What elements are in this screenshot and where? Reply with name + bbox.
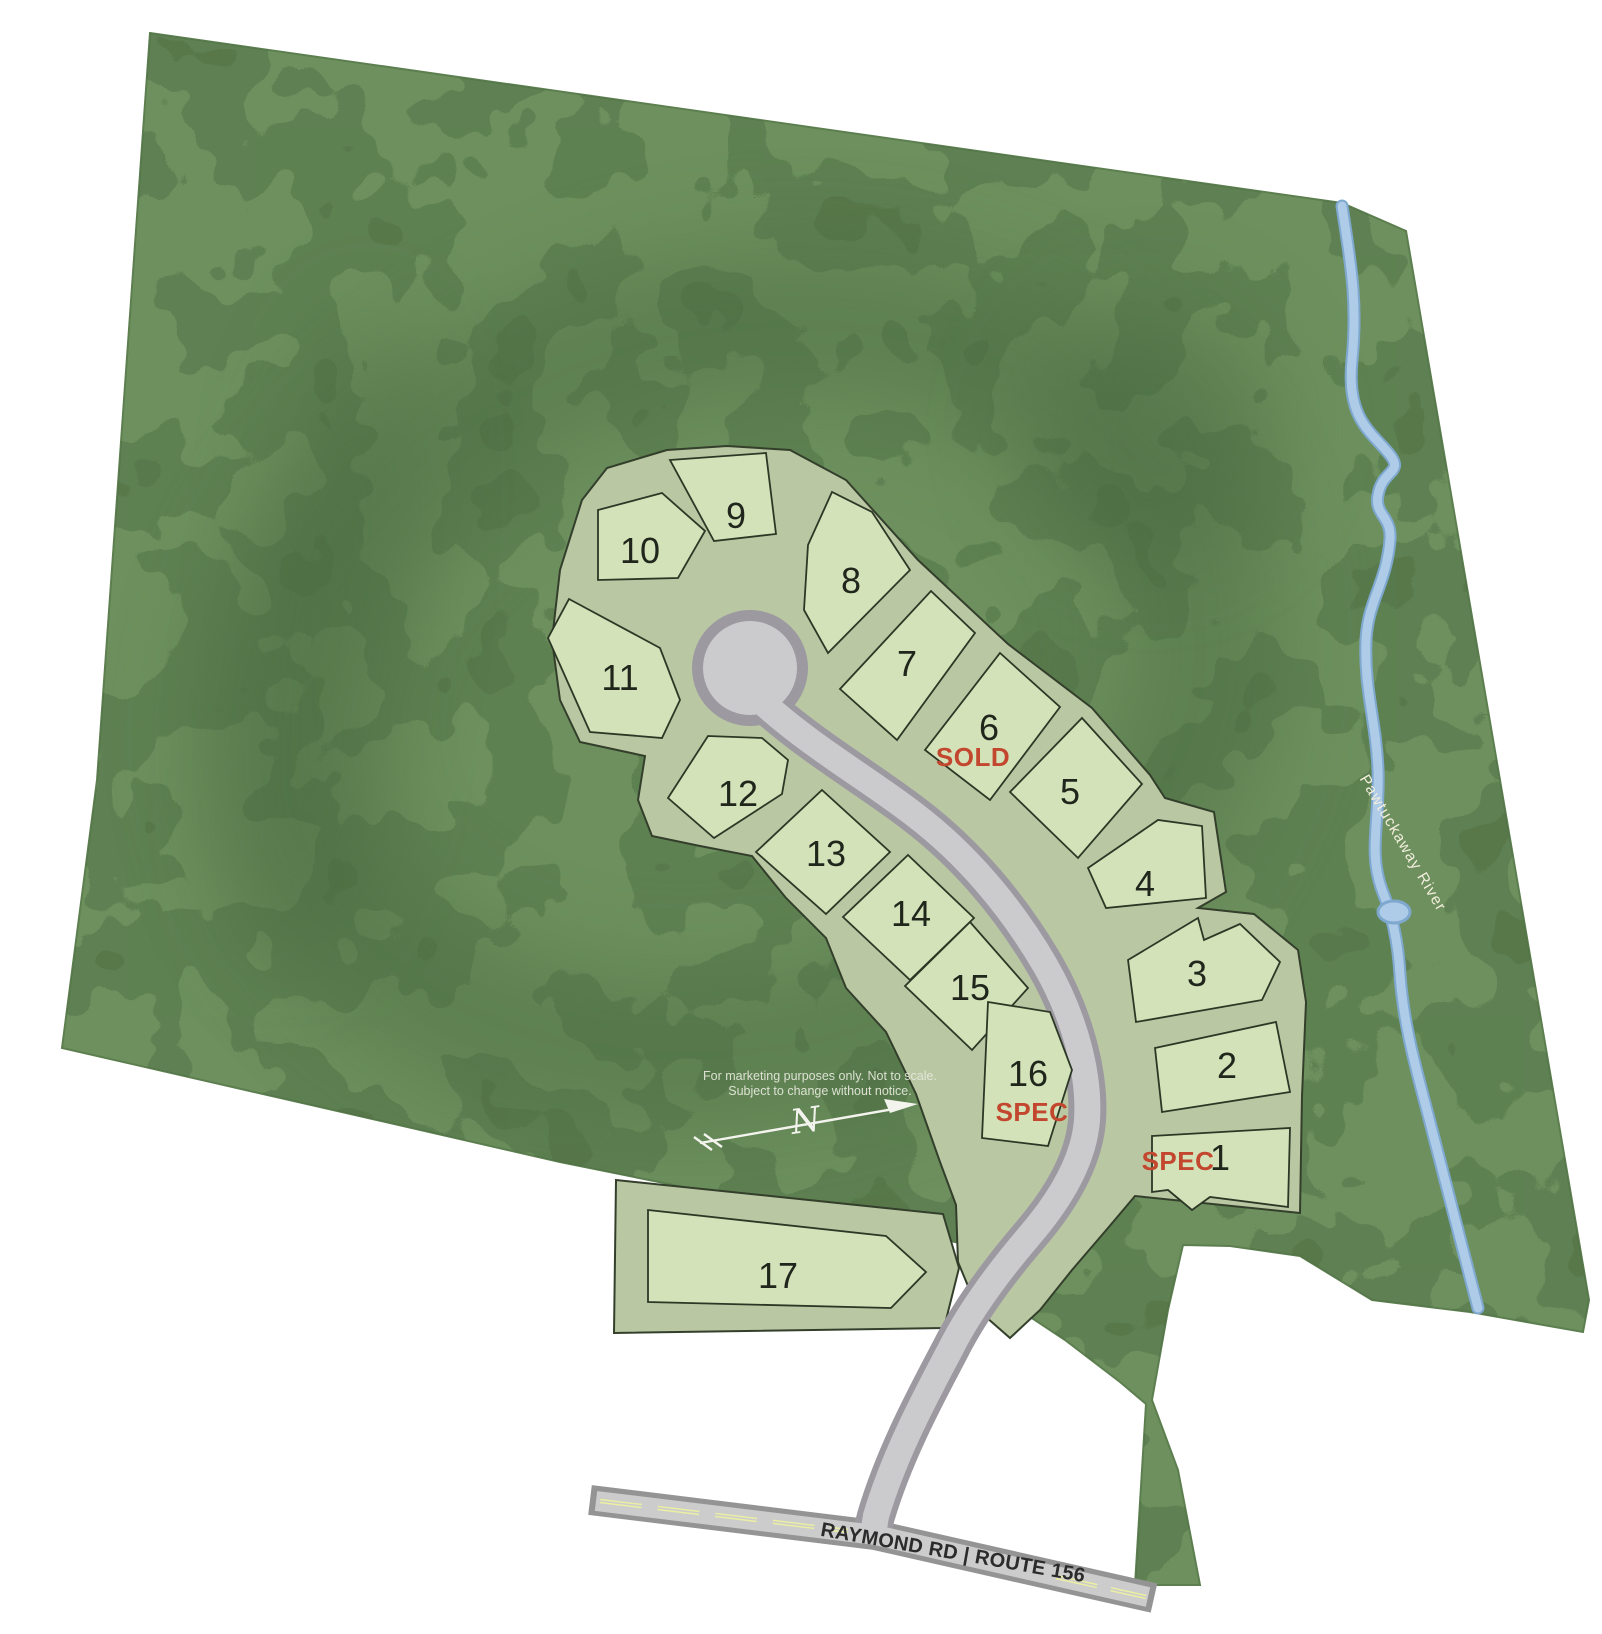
lot-10-number: 10	[620, 530, 660, 571]
disclaimer-line-1: For marketing purposes only. Not to scal…	[703, 1069, 937, 1083]
pond	[1378, 901, 1410, 923]
cul-de-sac-surface	[703, 621, 797, 715]
lot-7-number: 7	[897, 643, 917, 684]
lot-8-number: 8	[841, 560, 861, 601]
disclaimer-line-2: Subject to change without notice.	[728, 1084, 911, 1098]
lot-9-number: 9	[726, 495, 746, 536]
lot-16-number: 16	[1008, 1053, 1048, 1094]
site-plan-map: Pawtuckaway River RAYMOND RD | ROUTE 156…	[0, 0, 1602, 1634]
lot-14-number: 14	[891, 893, 931, 934]
lot-13-number: 13	[806, 833, 846, 874]
contour-shade-blob	[1020, 300, 1280, 560]
lot-1-status-badge: SPEC	[1142, 1146, 1215, 1176]
lot-5-number: 5	[1060, 771, 1080, 812]
lot-17-number: 17	[758, 1255, 798, 1296]
lot-12-number: 12	[718, 773, 758, 814]
lot-16-status-badge: SPEC	[996, 1097, 1069, 1127]
lot-15-number: 15	[950, 967, 990, 1008]
lot-3-number: 3	[1187, 953, 1207, 994]
site-plan-page: Pawtuckaway River RAYMOND RD | ROUTE 156…	[0, 0, 1602, 1634]
lot-11-number: 11	[601, 657, 638, 698]
highway-label: RAYMOND RD | ROUTE 156	[819, 1519, 1087, 1587]
lot-2-number: 2	[1217, 1045, 1237, 1086]
lot-6-status-badge: SOLD	[936, 742, 1010, 772]
lot-4-number: 4	[1135, 863, 1155, 904]
